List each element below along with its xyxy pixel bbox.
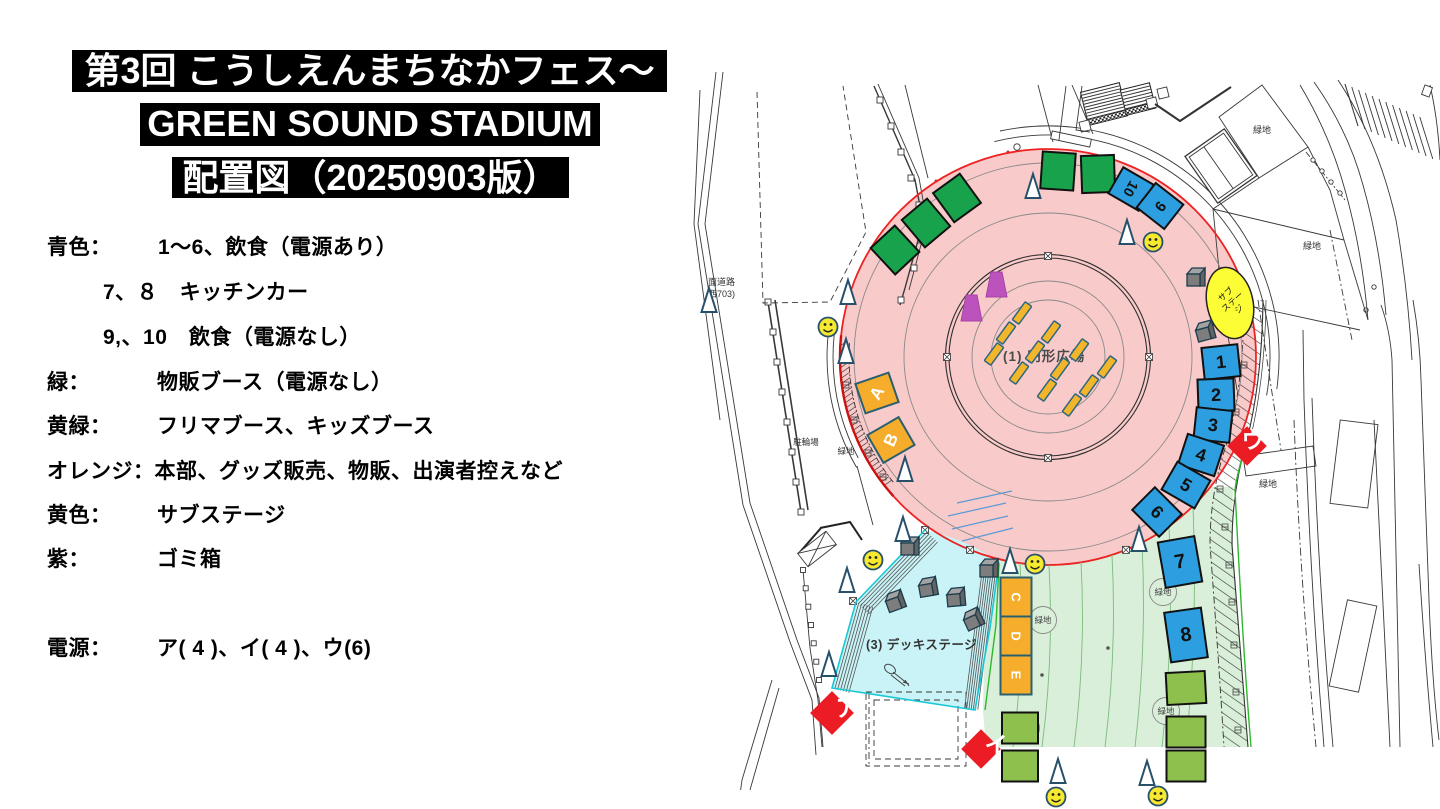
svg-text:緑地: 緑地 bbox=[1253, 124, 1271, 135]
svg-text:緑地: 緑地 bbox=[1034, 615, 1052, 625]
svg-text:緑地: 緑地 bbox=[1303, 240, 1321, 251]
svg-text:D: D bbox=[1009, 631, 1024, 640]
svg-text:駐輪場: 駐輪場 bbox=[793, 437, 819, 447]
svg-text:1: 1 bbox=[1215, 352, 1227, 373]
svg-text:(3) デッキステージ: (3) デッキステージ bbox=[866, 637, 977, 652]
svg-text:面道路: 面道路 bbox=[708, 276, 735, 287]
svg-text:緑地: 緑地 bbox=[837, 446, 855, 456]
svg-text:3: 3 bbox=[1207, 415, 1219, 436]
svg-text:緑地: 緑地 bbox=[1154, 587, 1172, 597]
svg-text:E: E bbox=[1009, 671, 1024, 680]
svg-text:2: 2 bbox=[1211, 385, 1222, 405]
svg-text:ア: ア bbox=[836, 695, 859, 721]
svg-text:緑地: 緑地 bbox=[1259, 478, 1277, 489]
svg-text:緑地: 緑地 bbox=[1157, 706, 1175, 716]
svg-text:イ: イ bbox=[985, 732, 1008, 758]
svg-text:C: C bbox=[1009, 592, 1024, 602]
svg-text:ウ: ウ bbox=[1242, 427, 1265, 453]
